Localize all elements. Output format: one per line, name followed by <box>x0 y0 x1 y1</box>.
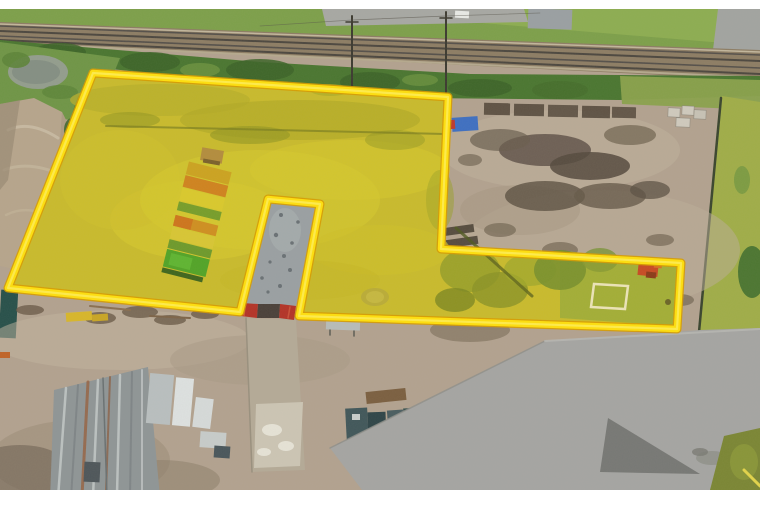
container <box>214 445 231 458</box>
excluded-building-shape <box>296 220 300 224</box>
aerial-photo-frame <box>0 0 760 505</box>
excluded-building-shape <box>290 241 294 245</box>
blue-machine <box>452 116 479 132</box>
trailer <box>192 397 214 429</box>
south-yard-shape <box>278 441 294 451</box>
excluded-building-shape <box>266 290 269 293</box>
dirt-yard-shape <box>458 154 482 166</box>
debris-pile <box>550 152 630 180</box>
trackside-brush-shape <box>402 74 438 86</box>
west-side-shape <box>2 52 30 68</box>
dirt-yard-shape <box>646 234 674 246</box>
far-shed <box>528 8 573 30</box>
dirt-yard-shape <box>630 181 670 199</box>
excluded-building-shape <box>279 213 283 217</box>
dark-van <box>83 462 100 483</box>
trackside-brush-shape <box>226 59 294 81</box>
storage-rack <box>514 104 544 117</box>
dirt-yard-shape <box>484 223 516 237</box>
storage-rack <box>548 105 578 118</box>
trackside-brush-shape <box>532 81 588 99</box>
yellow-machine <box>66 311 93 322</box>
trackside-brush-shape <box>448 79 512 97</box>
excluded-building-shape <box>274 233 278 237</box>
excluded-building-shape <box>268 260 271 263</box>
south-yard-shape <box>352 414 360 420</box>
storage-rack <box>612 107 636 118</box>
south-yard-shape <box>92 313 108 321</box>
dirt-yard-shape <box>604 125 656 145</box>
dirt-yard-shape <box>470 129 530 151</box>
south-yard-shape <box>262 424 282 436</box>
yard-debris <box>16 305 44 315</box>
concrete-block <box>682 106 694 115</box>
excluded-building-shape <box>278 284 282 288</box>
storage-rack <box>484 103 510 115</box>
concrete-block <box>676 118 690 127</box>
south-yard-shape <box>730 444 758 480</box>
orange-bin <box>0 352 10 358</box>
excluded-building-shape <box>282 254 286 258</box>
excluded-building-shape <box>260 276 264 280</box>
east-side-shape <box>734 166 750 194</box>
excluded-building-shape <box>269 208 301 252</box>
storage-rack <box>582 106 610 118</box>
doorway <box>257 304 280 318</box>
south-yard-shape <box>692 448 708 456</box>
trailer <box>146 373 174 425</box>
aerial-photo <box>0 0 760 505</box>
excluded-building-shape <box>288 268 292 272</box>
concrete-block <box>668 108 680 117</box>
debris-pile <box>505 181 585 211</box>
south-yard-shape <box>257 448 271 456</box>
white-vehicle <box>455 11 469 19</box>
concrete-block <box>694 110 706 119</box>
concrete-pad <box>254 402 303 468</box>
trackside-brush-shape <box>120 52 180 72</box>
